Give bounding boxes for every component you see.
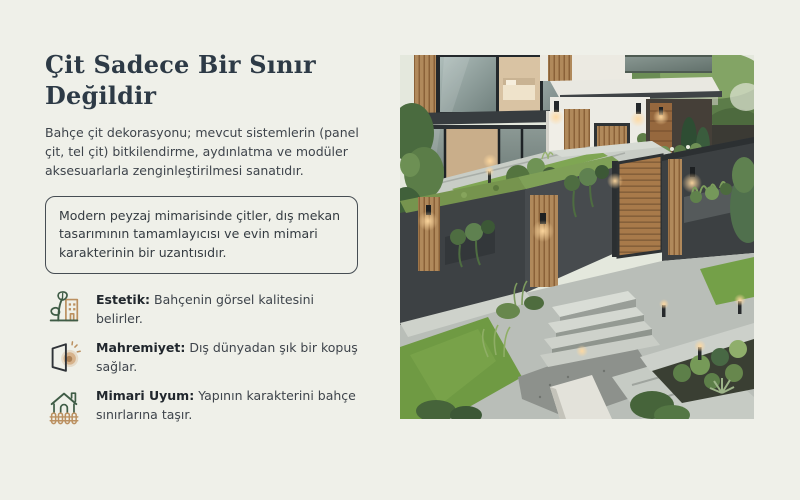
wood-gate	[607, 155, 662, 257]
page-title: Çit Sadece Bir Sınır Değildir	[45, 50, 375, 111]
slide-canvas: Çit Sadece Bir Sınır Değildir Bahçe çit …	[0, 0, 800, 500]
feature-mimari-uyum: Mimari Uyum: Yapının karakterini bahçe s…	[45, 387, 375, 425]
highlight-box: Modern peyzaj mimarisinde çitler, dış me…	[45, 196, 358, 274]
house-fence-icon	[45, 387, 83, 425]
feature-text: Estetik: Bahçenin görsel kalitesini beli…	[96, 291, 358, 329]
text-column: Çit Sadece Bir Sınır Değildir Bahçe çit …	[45, 50, 375, 425]
feature-text: Mimari Uyum: Yapının karakterini bahçe s…	[96, 387, 358, 425]
leaf-building-icon	[45, 291, 83, 329]
highlight-text: Modern peyzaj mimarisinde çitler, dış me…	[59, 208, 340, 261]
house-photo	[400, 55, 754, 419]
house-photo-illustration	[400, 55, 754, 419]
open-door-light-icon	[45, 339, 83, 377]
title-line-2: Değildir	[45, 81, 375, 112]
intro-text: Bahçe çit dekorasyonu; mevcut sistemleri…	[45, 124, 375, 180]
feature-text: Mahremiyet: Dış dünyadan şık bir kopuş s…	[96, 339, 358, 377]
title-line-1: Çit Sadece Bir Sınır	[45, 50, 375, 81]
feature-estetik: Estetik: Bahçenin görsel kalitesini beli…	[45, 291, 375, 329]
right-fence	[662, 137, 754, 261]
feature-list: Estetik: Bahçenin görsel kalitesini beli…	[45, 291, 375, 425]
feature-mahremiyet: Mahremiyet: Dış dünyadan şık bir kopuş s…	[45, 339, 375, 377]
